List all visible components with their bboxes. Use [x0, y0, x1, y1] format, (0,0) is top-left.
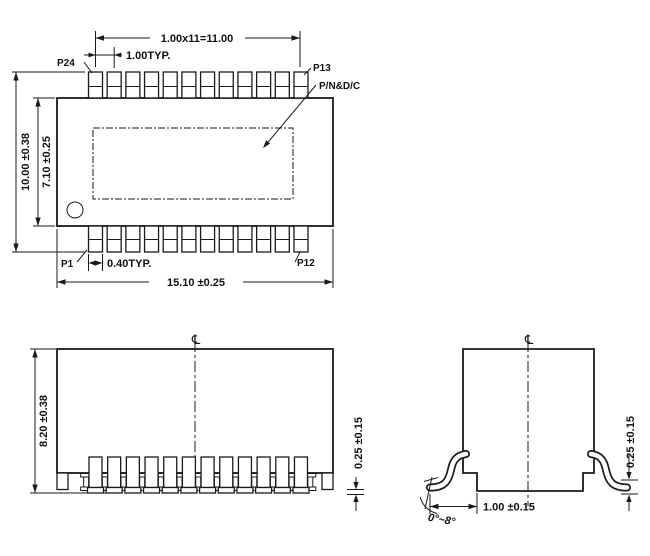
arrowhead [469, 504, 478, 509]
pin [219, 72, 233, 98]
angle-reference-line [425, 477, 432, 509]
back-pin [308, 477, 313, 487]
arrowhead [95, 260, 103, 265]
back-pin [84, 477, 89, 487]
corner-post [322, 473, 333, 490]
centerline-symbol: ℄ [190, 333, 202, 348]
arrowhead [57, 279, 66, 284]
front-pin-foot [125, 488, 141, 494]
front-pin [201, 457, 214, 488]
front-pin-foot [274, 488, 290, 494]
front-pin [89, 457, 102, 488]
back-pin [233, 477, 238, 487]
arrowhead [114, 53, 121, 58]
dimension-front-height: 8.20 ±0.38 [38, 395, 50, 447]
arrowhead [32, 349, 37, 358]
arrowhead [325, 279, 334, 284]
front-pin-foot [237, 488, 253, 494]
pin-label-p1: P1 [61, 259, 74, 270]
top-pin-row-upper [89, 72, 308, 98]
arrowhead [35, 218, 40, 227]
arrowhead [96, 35, 105, 40]
dimension-front-standoff: 0.25 ±0.15 [353, 417, 365, 469]
back-pin [252, 477, 257, 487]
back-pin [270, 477, 275, 487]
front-pin-foot [218, 488, 234, 494]
front-pin [276, 457, 289, 488]
pin [145, 72, 159, 98]
front-pin [164, 457, 177, 488]
front-pin [238, 457, 251, 488]
dimension-body-height: 7.10 ±0.25 [41, 136, 53, 188]
back-pin [121, 477, 126, 487]
arrowhead [353, 495, 358, 503]
front-pin-foot [144, 488, 160, 494]
pin [201, 72, 215, 98]
dimension-foot-length: 1.00 ±0.15 [483, 502, 535, 514]
front-pin-foot [256, 488, 272, 494]
front-pin-foot [88, 488, 104, 494]
dimension-lead-angle: 0°~8° [427, 512, 457, 529]
dimension-row-pitch-total: 1.00x11=11.00 [161, 33, 234, 45]
front-pin [182, 457, 195, 488]
leader-p24 [84, 62, 92, 73]
front-pin [145, 457, 158, 488]
back-pin [214, 477, 219, 487]
front-pin-foot [200, 488, 216, 494]
arrowhead [430, 504, 439, 509]
pin [182, 72, 196, 98]
top-view: 1.00x11=11.00 1.00TYP. P24 P13 P/N&D/C 1… [12, 31, 360, 289]
dimension-lead-width: 0.40TYP. [107, 258, 151, 270]
front-pin [294, 457, 307, 488]
front-pin [108, 457, 121, 488]
pin-label-p24: P24 [57, 58, 75, 69]
pin [257, 72, 271, 98]
pin [126, 72, 140, 98]
back-pin [102, 477, 107, 487]
drawing-canvas: 1.00x11=11.00 1.00TYP. P24 P13 P/N&D/C 1… [0, 0, 650, 556]
pin [294, 72, 308, 98]
corner-post [57, 473, 68, 490]
arrowhead [13, 244, 18, 253]
front-pin [220, 457, 233, 488]
arrowhead [353, 482, 358, 490]
pin [238, 72, 252, 98]
arrowhead [626, 495, 631, 503]
pin-label-p12: P12 [297, 258, 315, 269]
side-view: ℄ 1.00 ±0.15 0°~8° 0.25 ±0.15 [420, 333, 638, 528]
front-pin [257, 457, 270, 488]
front-pin [126, 457, 139, 488]
pin-label-p13: P13 [313, 63, 331, 74]
front-view: ℄ 8.20 ±0.38 0.25 ±0.15 [30, 333, 365, 511]
back-pin [158, 477, 163, 487]
pin [275, 72, 289, 98]
centerline-symbol: ℄ [523, 333, 535, 348]
arrowhead [13, 72, 18, 81]
back-pin [177, 477, 182, 487]
back-pin [289, 477, 294, 487]
arrowhead [292, 35, 301, 40]
dimension-overall-height: 10.00 ±0.38 [20, 133, 32, 191]
back-pin [140, 477, 145, 487]
top-view-body [57, 98, 333, 226]
pin [163, 72, 177, 98]
arrowhead [35, 98, 40, 107]
front-pin-foot [106, 488, 122, 494]
pin [107, 72, 121, 98]
arrowhead [32, 485, 37, 494]
arrowhead [89, 53, 96, 58]
top-pin-row-lower [89, 226, 308, 252]
arrowhead [89, 260, 97, 265]
dimension-overall-width: 15.10 ±0.25 [167, 277, 225, 289]
front-pin-foot [162, 488, 178, 494]
dimension-side-standoff: 0.25 ±0.15 [625, 416, 637, 468]
back-pin [196, 477, 201, 487]
pin [89, 72, 103, 98]
arrowhead [626, 472, 631, 480]
front-pin-foot [181, 488, 197, 494]
front-pin-foot [293, 488, 309, 494]
marking-label: P/N&D/C [319, 81, 360, 92]
dimension-pitch: 1.00TYP. [126, 50, 170, 62]
package-outline-drawing: 1.00x11=11.00 1.00TYP. P24 P13 P/N&D/C 1… [0, 0, 650, 556]
